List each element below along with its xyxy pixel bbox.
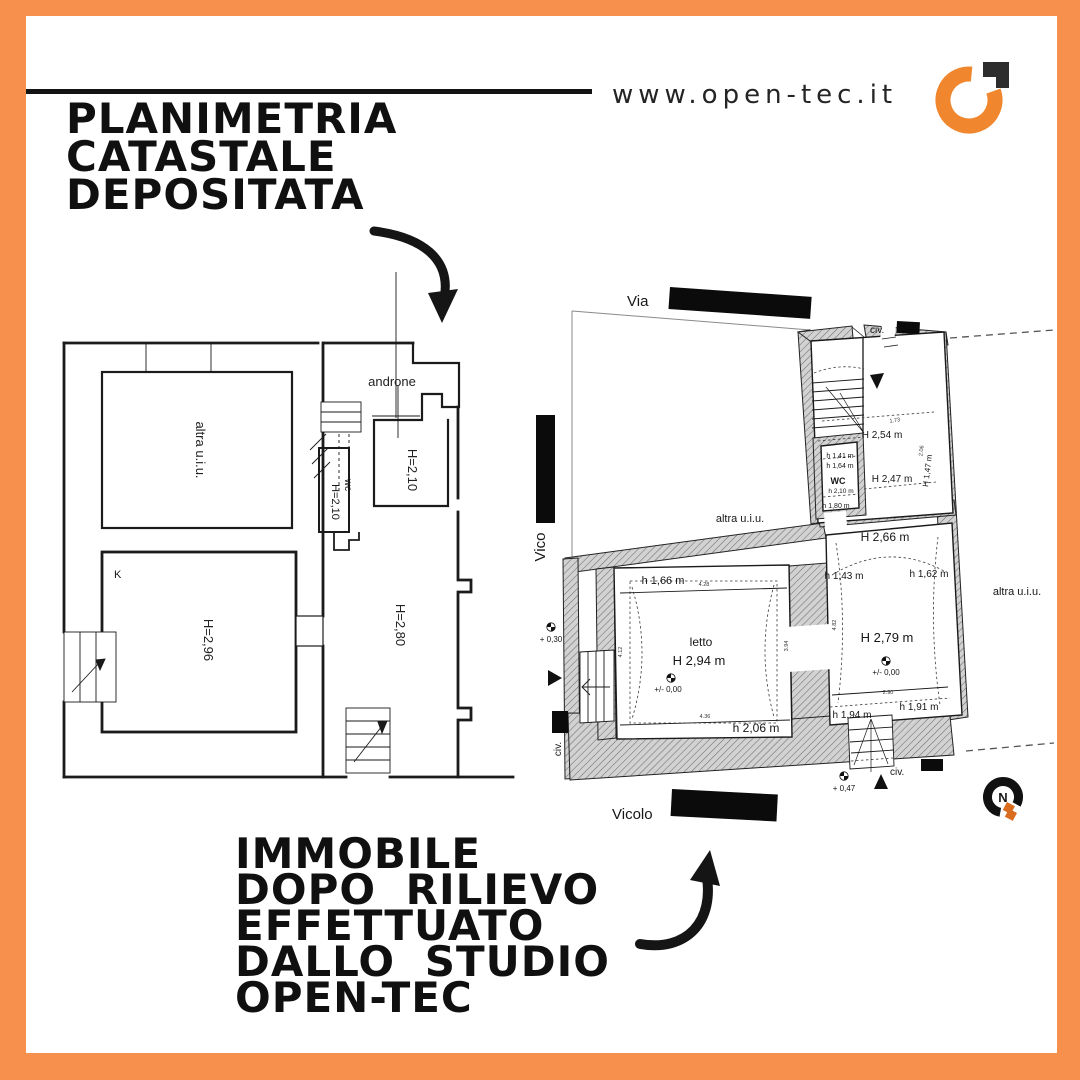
label-civ-bottom: civ. (890, 767, 904, 778)
website-url: www.open-tec.it (612, 80, 897, 110)
label-h247: H 2,47 m (872, 474, 913, 485)
lot-boundary-line (572, 311, 810, 565)
stairs-bottom (346, 708, 390, 773)
label-wc: WC (831, 476, 846, 486)
label-altra-uiu-2: altra u.i.u. (993, 586, 1041, 598)
room-letto (614, 565, 792, 739)
label-h191: h 1,91 m (900, 702, 939, 713)
redaction-bar (668, 287, 811, 319)
label-altra-uiu-1: altra u.i.u. (716, 513, 764, 525)
label-lvl-zero-b: +/- 0,00 (872, 668, 900, 677)
compass-north-letter: N (998, 790, 1007, 805)
label-letto: letto (690, 635, 713, 649)
label-hall-height: H=2,10 (405, 449, 420, 491)
label-civ-left: civ. (553, 742, 564, 756)
label-street-vicolo: Vicolo (612, 806, 653, 823)
label-lvl-047: + 0,47 (833, 784, 856, 793)
boundary-dash-bottom (966, 743, 1054, 751)
title-line: DEPOSITATA (66, 176, 397, 214)
label-h279: H 2,79 m (861, 630, 914, 645)
cadastral-floorplan-drawing: altra u.i.u. androne H=2,10 wc H=2,10 K … (56, 270, 524, 796)
stairs-vicolo (848, 715, 894, 772)
entrance-marker-left-icon (548, 670, 562, 686)
open-tec-logo (933, 56, 1017, 140)
label-street-via: Via (627, 293, 649, 310)
label-h180: h 1,80 m (822, 503, 849, 510)
label-street-vico: Vico (532, 533, 549, 562)
label-wc-h: h 2,10 m (828, 488, 853, 495)
room-kitchen (102, 552, 296, 732)
label-civ-top: civ. (870, 325, 884, 336)
room-h266-h279 (826, 523, 962, 725)
redaction-bar (896, 321, 920, 334)
redaction-bar (536, 415, 555, 523)
redaction-bar (552, 711, 568, 733)
label-h164: h 1,64 m (826, 463, 853, 470)
level-marker-icon (840, 772, 848, 780)
label-wc: wc (342, 478, 353, 491)
label-h166: h 1,66 m (642, 575, 685, 587)
label-d412: 4.12 (618, 647, 624, 658)
stairs-exterior (64, 632, 116, 702)
label-h141: h 1,41 m (826, 453, 853, 460)
level-marker-icon (547, 623, 555, 631)
north-compass-icon: N (985, 779, 1021, 821)
label-h194: h 1,94 m (833, 710, 872, 721)
label-d482: 4.82 (832, 620, 838, 631)
entrance-marker-bottom-icon (874, 774, 888, 789)
label-letto-h: H 2,94 m (673, 653, 726, 668)
label-lvl-zero-a: +/- 0,00 (654, 685, 682, 694)
label-kitchen: K (114, 569, 122, 581)
label-lvl-030: + 0,30 (540, 635, 563, 644)
title-block: PLANIMETRIA CATASTALE DEPOSITATA (66, 100, 397, 214)
label-h266: H 2,66 m (861, 530, 910, 544)
label-altra-uiu: altra u.i.u. (193, 421, 208, 478)
label-h162: h 1,62 m (910, 569, 949, 580)
label-h206: h 2,06 m (733, 721, 780, 735)
stairs-androne (310, 402, 361, 490)
label-h143: h 1,43 m (825, 571, 864, 582)
boundary-dash-top (950, 330, 1054, 338)
label-d394: 3.94 (784, 641, 790, 652)
logo-square-icon (983, 62, 1009, 88)
label-kitchen-height: H=2,96 (201, 619, 216, 661)
level-marker-icon (882, 657, 890, 665)
label-d290: 2.90 (883, 690, 894, 696)
poster-canvas: www.open-tec.it PLANIMETRIA CATASTALE DE… (0, 0, 1080, 1080)
label-androne: androne (368, 374, 416, 389)
redaction-bar (671, 789, 778, 822)
label-living-height: H=2,80 (393, 604, 408, 646)
redaction-bar (921, 759, 943, 771)
caption-block: IMMOBILE DOPO RILIEVO EFFETTUATO DALLO S… (235, 836, 610, 1016)
label-h254: H 2,54 m (862, 430, 903, 441)
survey-floorplan-drawing: Via Vico Vicolo civ. civ. civ. altra u.i… (530, 275, 1075, 840)
label-d428: 4.28 (699, 582, 710, 588)
level-marker-icon (667, 674, 675, 682)
arrow-to-survey-plan (620, 838, 750, 958)
label-wc-height: H=2,10 (329, 484, 341, 520)
label-d436: 4.36 (700, 714, 711, 720)
stairs-vico (580, 650, 614, 723)
